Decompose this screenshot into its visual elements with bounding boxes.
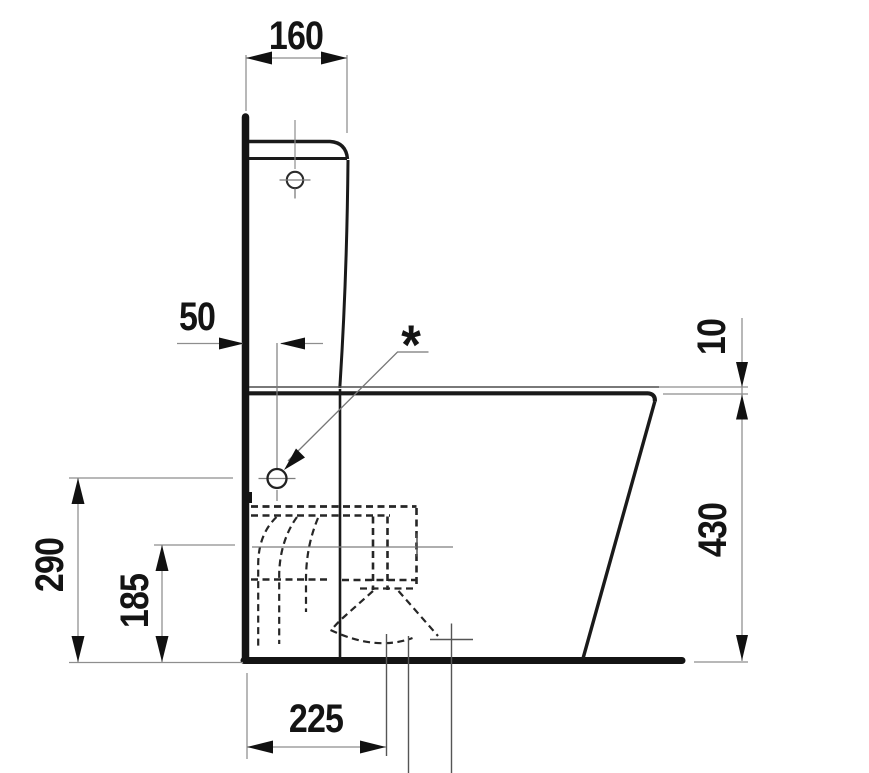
note-marker-asterisk: *: [401, 317, 421, 373]
technical-drawing-wc-side-elevation: 160 50 * 10 430 290 185 225: [0, 0, 869, 773]
dim-label-inlet-height: 290: [30, 538, 70, 592]
dim-label-hole-offset: 50: [179, 297, 215, 337]
dim-label-seat-gap: 10: [692, 319, 732, 355]
dim-label-outlet-height: 185: [115, 574, 155, 628]
trap-hidden-lines: [251, 507, 438, 651]
drain-position-marks: [387, 624, 474, 773]
note-leader-arrow: [284, 449, 305, 471]
dim-label-outlet-setout: 225: [289, 699, 343, 739]
cistern-outline: [249, 142, 348, 389]
inlet-hole-marker: [259, 343, 296, 501]
dim-50-arrows: [219, 338, 305, 350]
drawing-linework: [0, 0, 869, 773]
dim-10-430-lines: [659, 318, 748, 662]
dim-label-rim-height: 430: [693, 503, 733, 557]
dim-label-cistern-width: 160: [269, 16, 323, 56]
dim-160-lines: [246, 55, 347, 133]
pan-outline: [244, 387, 660, 659]
